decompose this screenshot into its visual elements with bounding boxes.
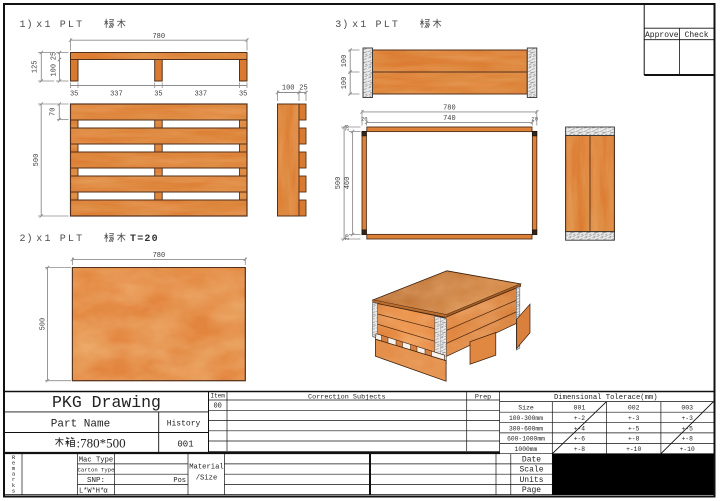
- svg-text:x1: x1: [36, 234, 52, 245]
- svg-text:500: 500: [33, 154, 41, 167]
- svg-text:+-8: +-8: [682, 436, 694, 443]
- svg-text:Item: Item: [210, 392, 225, 399]
- svg-text:Material: Material: [189, 464, 224, 472]
- svg-text:L*W*H*: L*W*H*: [79, 487, 104, 495]
- svg-text:Size: Size: [518, 405, 534, 412]
- svg-text:001: 001: [177, 440, 193, 450]
- svg-text:780: 780: [443, 105, 456, 113]
- svg-text:+-3: +-3: [628, 415, 640, 422]
- svg-text:History: History: [167, 420, 201, 429]
- svg-text:740: 740: [443, 115, 456, 123]
- svg-text::780*500: :780*500: [77, 435, 126, 450]
- svg-text:α: α: [103, 488, 108, 496]
- svg-text:100: 100: [341, 55, 349, 68]
- svg-text:35: 35: [70, 91, 78, 99]
- svg-text:Check: Check: [685, 31, 709, 40]
- svg-text:125: 125: [32, 60, 40, 73]
- svg-text:001: 001: [574, 405, 586, 412]
- svg-text:003: 003: [681, 405, 693, 412]
- svg-text:Scale: Scale: [519, 466, 543, 475]
- svg-text:+-10: +-10: [680, 446, 695, 453]
- svg-text:35: 35: [239, 91, 247, 99]
- svg-text:Date: Date: [522, 455, 541, 464]
- svg-text:Prep: Prep: [475, 393, 491, 401]
- svg-text:100: 100: [50, 64, 58, 77]
- svg-text:25: 25: [50, 52, 58, 60]
- svg-text:500: 500: [39, 318, 47, 331]
- svg-text:PLT: PLT: [376, 20, 401, 31]
- svg-text:70: 70: [49, 108, 57, 116]
- svg-text:337: 337: [194, 91, 207, 99]
- svg-text:SNP:: SNP:: [87, 477, 105, 485]
- svg-text:460: 460: [344, 177, 352, 190]
- svg-text:PLT: PLT: [60, 20, 85, 31]
- svg-text:20: 20: [361, 116, 368, 123]
- svg-text:Units: Units: [519, 476, 543, 485]
- svg-text:1000mm: 1000mm: [515, 446, 538, 453]
- svg-text:/Size: /Size: [196, 475, 218, 483]
- svg-text:2): 2): [20, 233, 34, 245]
- svg-text:+-6: +-6: [574, 436, 586, 443]
- svg-text:100-300mm: 100-300mm: [509, 415, 543, 422]
- svg-text:x1: x1: [36, 20, 52, 31]
- svg-text:300-600mm: 300-600mm: [509, 425, 543, 432]
- svg-text:100: 100: [341, 77, 349, 90]
- svg-text:Carton Type: Carton Type: [78, 466, 115, 473]
- svg-text:35: 35: [154, 91, 162, 99]
- svg-text:Page: Page: [522, 486, 541, 495]
- svg-text:+-8: +-8: [574, 446, 586, 453]
- svg-text:Correction Subjects: Correction Subjects: [308, 393, 386, 401]
- svg-text:20: 20: [345, 125, 351, 131]
- svg-text:s: s: [12, 487, 15, 494]
- svg-text:+-5: +-5: [628, 425, 640, 432]
- svg-text:+-3: +-3: [682, 415, 694, 422]
- svg-text:+-2: +-2: [574, 415, 586, 422]
- svg-text:3): 3): [335, 19, 349, 31]
- svg-text:x1: x1: [352, 20, 368, 31]
- svg-text:600-1000mm: 600-1000mm: [507, 436, 545, 443]
- svg-text:25: 25: [299, 84, 307, 92]
- svg-text:Approve: Approve: [645, 31, 679, 40]
- svg-text:100: 100: [282, 84, 295, 92]
- svg-text:T=20: T=20: [130, 234, 159, 245]
- svg-text:+-10: +-10: [626, 446, 641, 453]
- svg-text:1): 1): [20, 19, 34, 31]
- svg-text:337: 337: [110, 91, 123, 99]
- svg-text:Part Name: Part Name: [51, 419, 110, 431]
- svg-text:500: 500: [335, 177, 343, 190]
- svg-text:780: 780: [152, 33, 165, 41]
- svg-text:20: 20: [531, 116, 538, 123]
- svg-text:Dimensional Tolerace(mm): Dimensional Tolerace(mm): [554, 394, 658, 402]
- svg-text:+-8: +-8: [628, 436, 640, 443]
- svg-text:00: 00: [213, 403, 221, 411]
- svg-text:002: 002: [628, 405, 640, 412]
- svg-text:PKG Drawing: PKG Drawing: [52, 393, 161, 412]
- svg-text:20: 20: [345, 234, 351, 240]
- svg-text:780: 780: [153, 252, 166, 260]
- svg-text:Pos: Pos: [173, 477, 186, 485]
- svg-text:Mac Type: Mac Type: [79, 457, 114, 465]
- svg-text:PLT: PLT: [60, 234, 85, 245]
